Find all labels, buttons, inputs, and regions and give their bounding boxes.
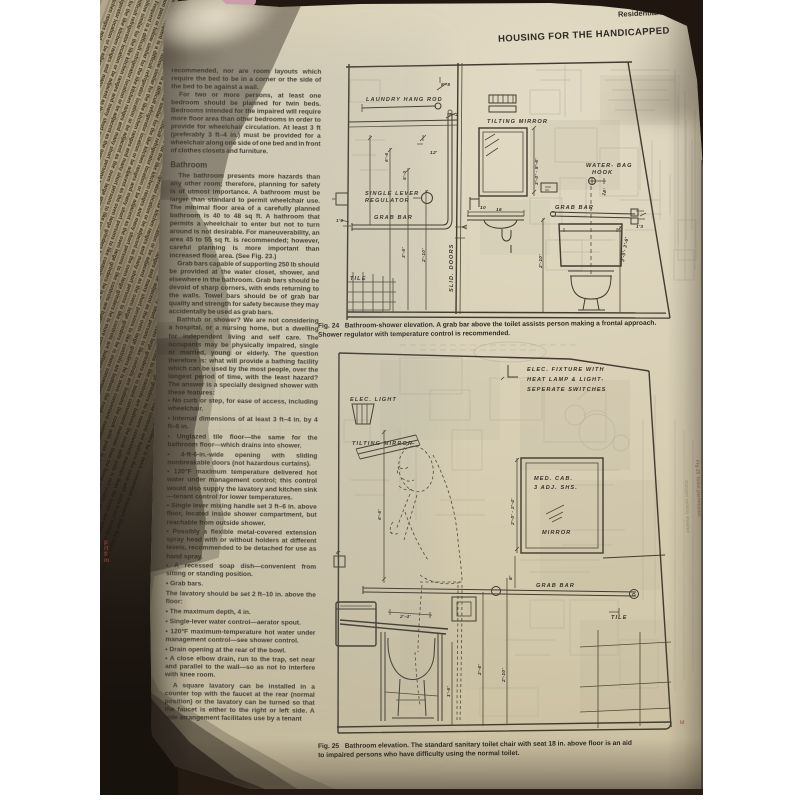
svg-text:8′: 8′ (508, 575, 514, 580)
svg-text:MIRROR: MIRROR (542, 530, 571, 536)
svg-text:1′3: 1′3 (636, 224, 643, 230)
svg-text:2′-6′: 2′-6′ (477, 664, 483, 676)
svg-text:GRAB BAR: GRAB BAR (536, 583, 575, 589)
svg-text:2′-10′: 2′-10′ (501, 668, 507, 683)
svg-text:3 ADJ. SHS.: 3 ADJ. SHS. (534, 485, 578, 491)
svg-text:HEAT LAMP & LIGHT-: HEAT LAMP & LIGHT- (527, 377, 604, 383)
svg-text:SLID. DOORS: SLID. DOORS (449, 244, 455, 292)
svg-text:10: 10 (480, 205, 486, 211)
svg-text:3′-0′ - 5′-6′: 3′-0′ - 5′-6′ (534, 158, 540, 185)
svg-text:MED. CAB.: MED. CAB. (534, 476, 573, 482)
svg-text:GRAB BAR: GRAB BAR (555, 205, 594, 211)
svg-text:8′-5: 8′-5 (441, 82, 450, 88)
svg-text:WATER- BAG: WATER- BAG (586, 163, 633, 169)
svg-text:1′-6′: 1′-6′ (446, 686, 452, 697)
svg-text:HOOK: HOOK (592, 170, 613, 176)
svg-text:SEPERATE SWITCHES: SEPERATE SWITCHES (527, 387, 607, 393)
svg-text:ELEC. FIXTURE WITH: ELEC. FIXTURE WITH (527, 367, 605, 373)
svg-text:2′-10′: 2′-10′ (538, 254, 544, 269)
svg-text:5′-2: 5′-2 (449, 112, 458, 118)
svg-text:2′-0′ - 2′-4′: 2′-0′ - 2′-4′ (510, 498, 516, 526)
svg-text:D: D (632, 592, 636, 598)
